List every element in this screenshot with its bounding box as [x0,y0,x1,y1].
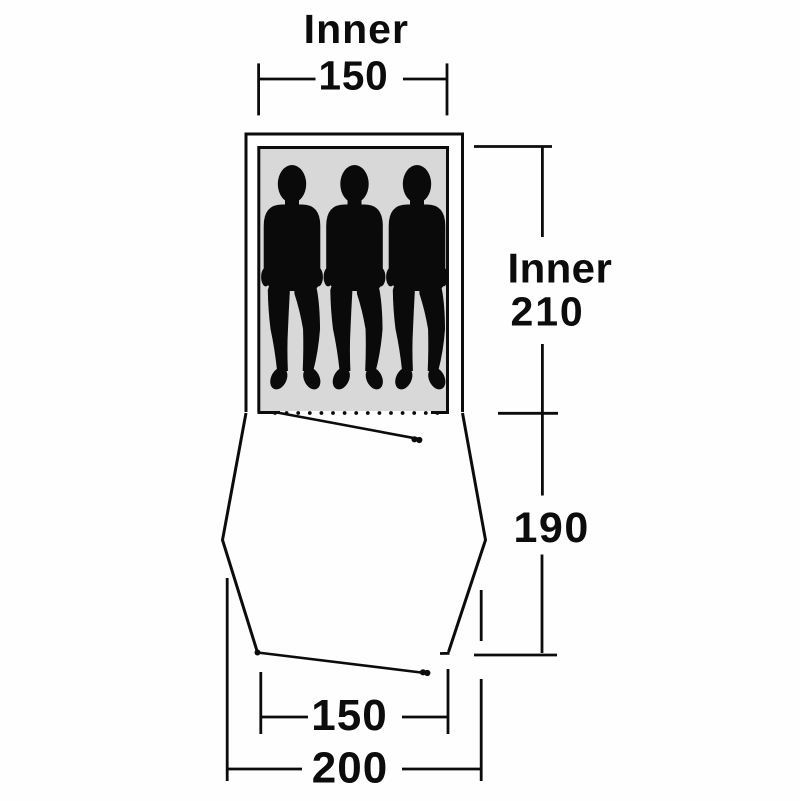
svg-text:190: 190 [514,504,590,552]
svg-text:Inner: Inner [304,6,409,52]
svg-text:150: 150 [319,53,389,99]
svg-text:Inner: Inner [508,245,613,292]
svg-text:150: 150 [311,691,387,740]
svg-text:210: 210 [511,289,585,335]
svg-text:200: 200 [312,744,388,793]
